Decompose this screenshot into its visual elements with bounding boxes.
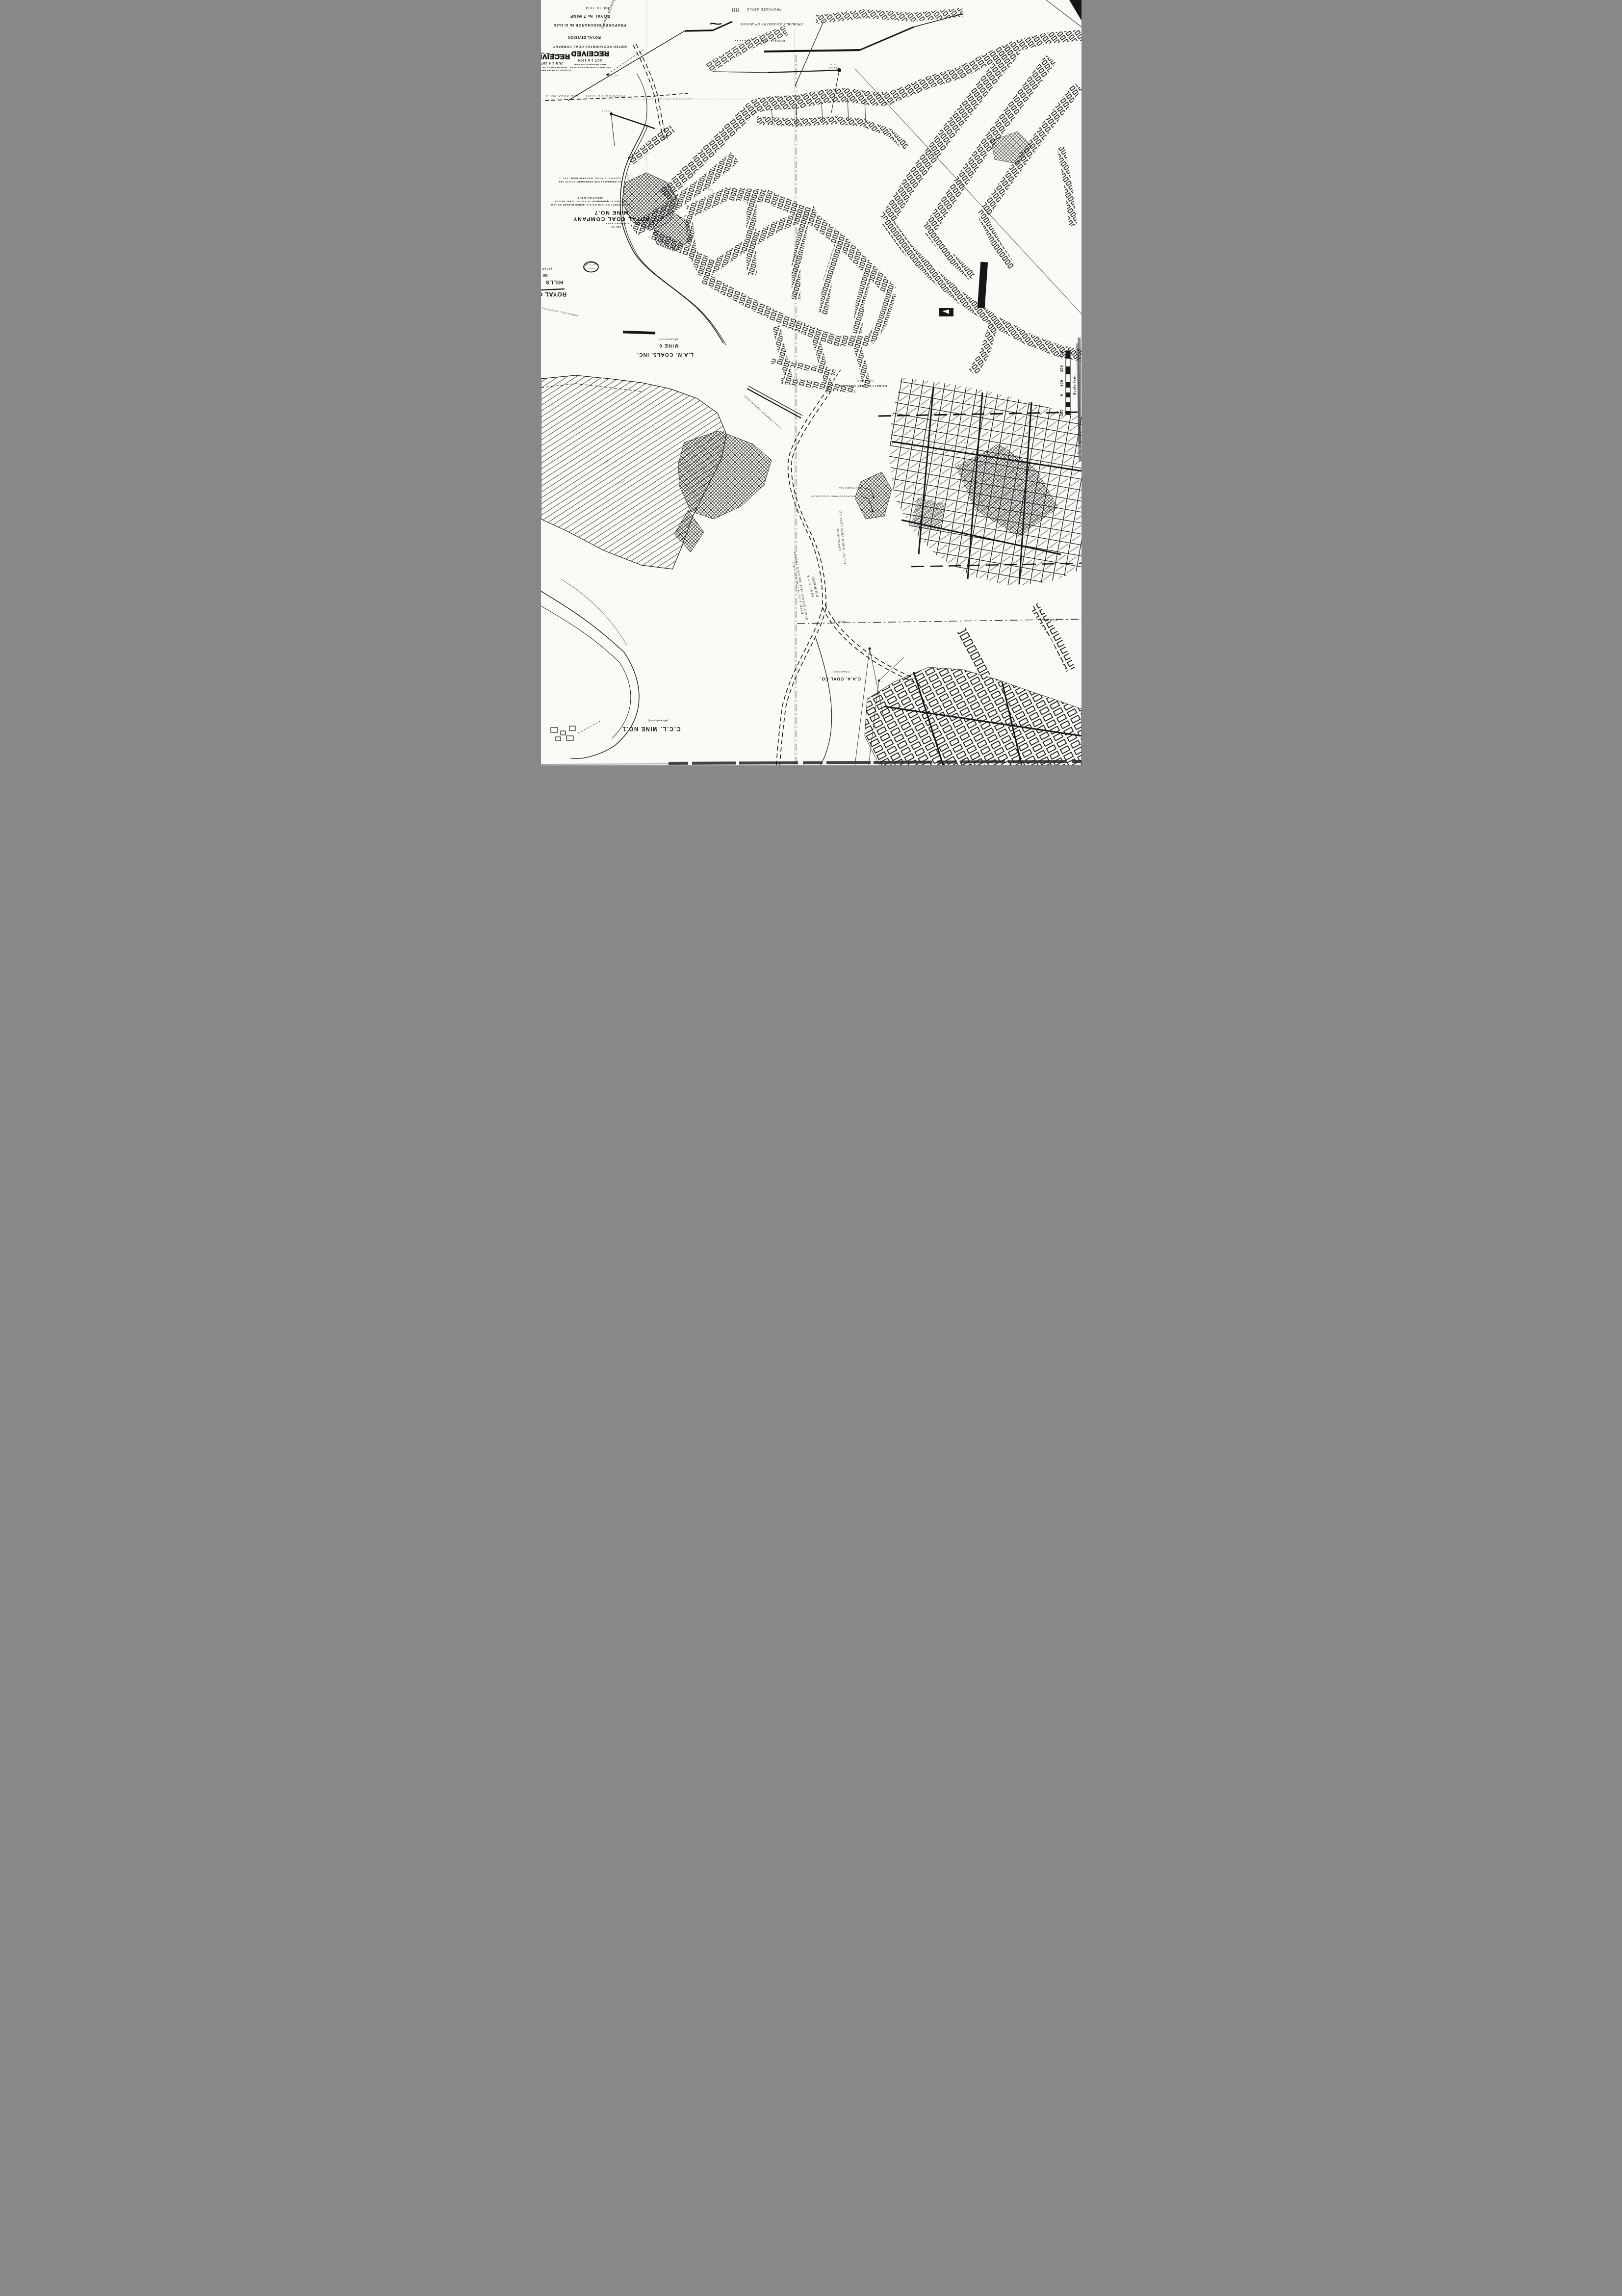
note-bonded1: 5 BONDED AREA (605, 222, 628, 225)
stamp-title: RECEIVED (571, 50, 609, 58)
point55-a: 5.5 (861, 650, 865, 652)
stamp-date: JUN 1 8 1974 (541, 61, 563, 65)
title-company: UNITED POCAHONTAS COAL COMPANY (552, 45, 627, 48)
edge-label-aban: (ABAN (541, 267, 552, 270)
proposed-fan-label: PROPOSED FAN (838, 486, 861, 489)
scale-tick: 200 (1060, 365, 1064, 372)
stamp-line2: MINE DRAINAGE SECTION (541, 66, 566, 69)
scanned-map-sheet: 300 200 100 0 100 Scale feet JUNE 10, 19… (541, 0, 1081, 765)
stamp-title: RECEIVED (541, 53, 570, 61)
title-discharge: PROPOSED DISCHARGE № D-1126 (554, 23, 626, 27)
stamp-line2: MINE DRAINAGE SECTION (574, 63, 606, 66)
legend-road-label: PRIVATE ROAD (758, 39, 785, 42)
lerse-label: LERSE (1044, 618, 1059, 622)
proposed-pump-label: PROPOSED PUMP DISCHARGE (811, 495, 855, 497)
title-mine: ROYAL № 7 MINE (569, 14, 610, 19)
point55-b: 5.5 (878, 680, 882, 682)
royal-mine7-line2: MINE NO.7 (594, 209, 628, 215)
scale-tick: 100 (1060, 409, 1064, 416)
caa-line1: C.A.A. COAL CO. (819, 677, 860, 681)
pond-water-supply: (water supply) (582, 264, 598, 266)
note-coords1: CO-ORDINATES FOR PERMANENT POINTS ARE (558, 181, 621, 183)
royal-mine7-line1: ROYAL COAL COMPANY (572, 216, 649, 222)
legend-boundary-symbol (710, 24, 721, 25)
note-elev2: LOCATED AT QUINNIMONT IN A 60 FT. STEEL … (553, 200, 626, 203)
hatched-patch (911, 497, 946, 531)
lam-line2: MINE 6 (658, 343, 678, 348)
boundary-heavy-line (685, 30, 713, 31)
map-canvas: 300 200 100 0 100 Scale feet JUNE 10, 19… (541, 0, 1081, 765)
title-division: ROYAL DIVISION (567, 35, 601, 39)
scale-tick: 0 (1060, 394, 1064, 396)
scale-tick: 300 (1060, 351, 1064, 358)
stamp-line1: DIVISION OF WATER RESOURCES (541, 69, 571, 72)
western-pocahontas-label: WESTERN POCAHONTAS (642, 97, 692, 100)
legend-seals-label: PROPOSED SEALS (747, 7, 781, 11)
pond-label: POND (587, 267, 595, 270)
edge-label-royal: ROYAL C (541, 291, 566, 298)
lam-line1: L.A.M. COALS, INC. (637, 352, 694, 358)
stamp-date: OCT 1 6 1974 (577, 58, 602, 62)
oak-note: OAK 5.5 (828, 67, 839, 69)
corner-dot-57 (610, 112, 613, 115)
cor54-note: COR 54 (829, 63, 839, 66)
n18000-label: N 18,000 (834, 621, 848, 624)
edge-label-hills: HILLS (545, 279, 563, 285)
scale-caption: Scale feet (1073, 375, 1077, 395)
caa-line2: (Abandoned) (832, 670, 850, 673)
note-elev3: ELEVATIONS TIED INTO U.S.G.S. BENCH MARK… (550, 204, 629, 206)
ccl-line2: (Abandoned) (647, 719, 668, 722)
ccl-line1: C.C.L. MINE NO.1 (622, 726, 680, 731)
cor57-note: COR 57 (601, 110, 611, 112)
note-bonded2: 192 AC. (610, 226, 620, 228)
scale-tick: 100 (1060, 380, 1064, 387)
fee-area-label: FEE AREA NO. 1 (545, 94, 578, 97)
workings-segment (816, 12, 963, 20)
workings-segment (751, 195, 752, 275)
legend-boundary-label: PROBABLE BOUNDARY OF MINING (740, 22, 803, 26)
lilly-line1: Former I.C. LILLY COAL CO. (838, 384, 886, 387)
pocahontas-coal-label: POCAHONTAS COAL (584, 94, 625, 97)
lam-line3: (Abandoned) (658, 338, 678, 340)
edge-label-mi: MI (542, 273, 547, 277)
stamp-line1: DIVISION OF WATER RESOURCES (569, 66, 610, 69)
note-coords2: LOCATED IN ROYAL TRAVERSE BOOK, VOL. 7 (559, 177, 620, 180)
note-elev1: ELEVATION 1801.6 (577, 197, 602, 199)
lilly-line2: (Abandoned) (856, 380, 874, 382)
